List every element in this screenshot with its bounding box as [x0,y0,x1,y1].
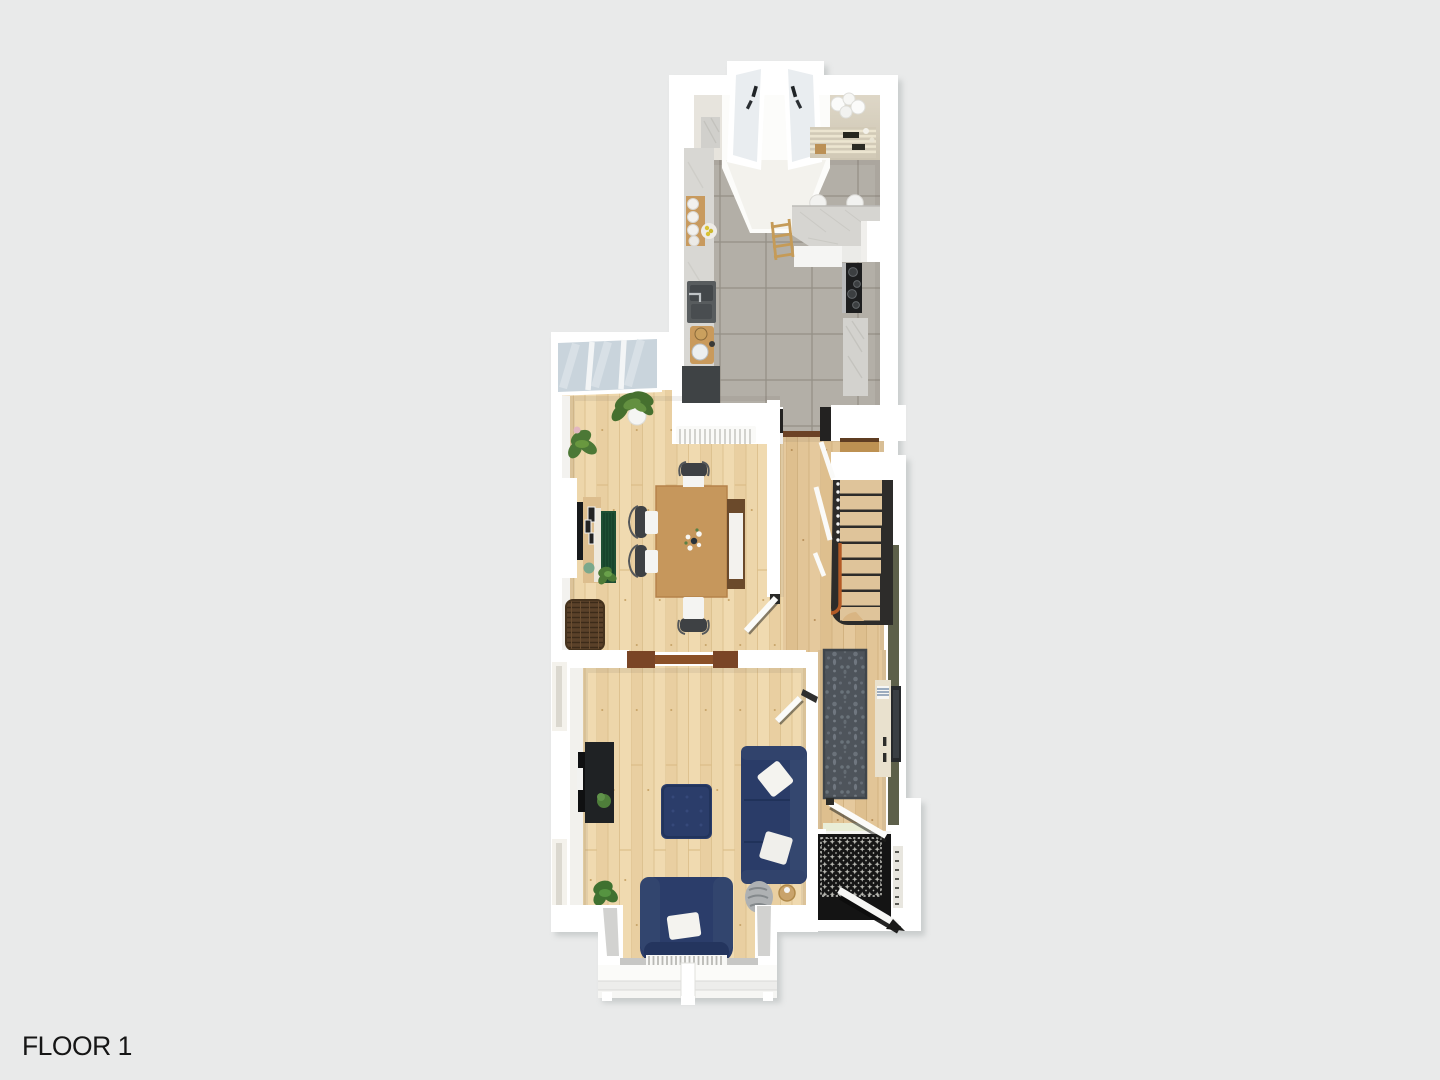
svg-text:FLOOR 1: FLOOR 1 [22,1031,132,1061]
